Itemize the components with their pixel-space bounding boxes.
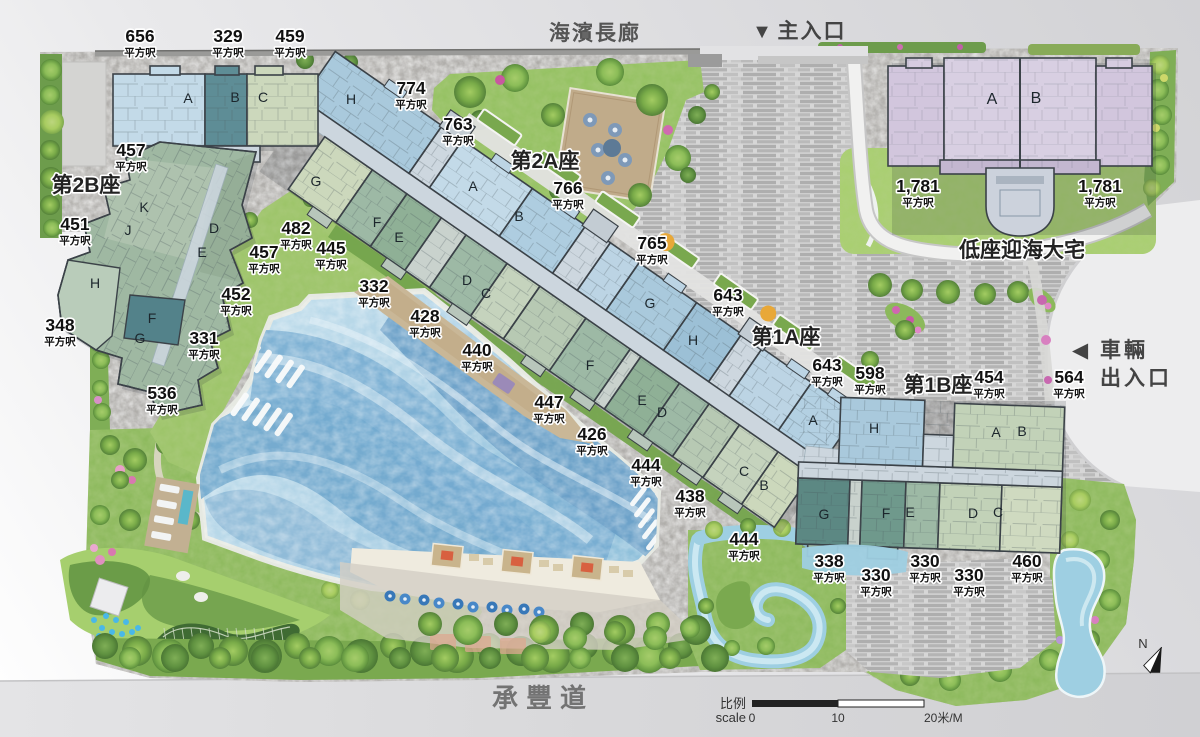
svg-text:平方呎: 平方呎	[124, 46, 156, 59]
svg-text:E: E	[197, 244, 206, 260]
svg-text:F: F	[148, 310, 157, 326]
svg-text:B: B	[1031, 90, 1042, 107]
svg-text:G: G	[135, 330, 146, 346]
svg-text:B: B	[230, 89, 239, 105]
svg-text:平方呎: 平方呎	[315, 258, 347, 271]
svg-text:平方呎: 平方呎	[860, 585, 892, 598]
svg-text:451: 451	[60, 214, 89, 234]
svg-text:656: 656	[125, 26, 154, 46]
svg-text:平方呎: 平方呎	[712, 305, 744, 318]
svg-text:338: 338	[814, 551, 843, 571]
svg-text:H: H	[346, 91, 356, 107]
svg-text:平方呎: 平方呎	[854, 383, 886, 396]
svg-text:海濱長廊: 海濱長廊	[549, 21, 641, 45]
svg-text:20米/M: 20米/M	[924, 711, 963, 725]
svg-text:平方呎: 平方呎	[44, 335, 76, 348]
svg-text:330: 330	[910, 551, 939, 571]
svg-text:1,781: 1,781	[1078, 176, 1122, 196]
svg-text:D: D	[209, 220, 219, 236]
svg-text:F: F	[373, 214, 382, 230]
svg-text:低座迎海大宅: 低座迎海大宅	[958, 238, 1085, 262]
svg-text:0: 0	[749, 711, 756, 725]
svg-text:出入口: 出入口	[1100, 367, 1172, 390]
svg-text:◀: ◀	[1072, 339, 1089, 362]
svg-text:A: A	[987, 91, 998, 108]
svg-text:440: 440	[462, 340, 491, 360]
svg-text:平方呎: 平方呎	[358, 296, 390, 309]
svg-text:平方呎: 平方呎	[461, 360, 493, 373]
svg-text:457: 457	[249, 242, 278, 262]
svg-text:平方呎: 平方呎	[728, 549, 760, 562]
svg-text:平方呎: 平方呎	[409, 326, 441, 339]
svg-text:比例: 比例	[720, 696, 746, 711]
svg-text:平方呎: 平方呎	[552, 198, 584, 211]
svg-text:C: C	[739, 463, 749, 479]
svg-text:348: 348	[45, 315, 74, 335]
svg-text:平方呎: 平方呎	[813, 571, 845, 584]
svg-text:H: H	[869, 420, 879, 436]
svg-text:444: 444	[631, 455, 660, 475]
svg-text:A: A	[183, 90, 193, 106]
svg-text:平方呎: 平方呎	[146, 403, 178, 416]
svg-text:平方呎: 平方呎	[953, 585, 985, 598]
svg-text:643: 643	[713, 285, 742, 305]
svg-text:330: 330	[954, 565, 983, 585]
svg-text:A: A	[991, 424, 1001, 440]
svg-text:第1B座: 第1B座	[904, 373, 973, 397]
svg-text:A: A	[468, 178, 478, 194]
svg-text:G: G	[819, 506, 830, 522]
svg-text:B: B	[514, 208, 523, 224]
svg-text:454: 454	[974, 367, 1003, 387]
svg-text:B: B	[1017, 423, 1026, 439]
svg-text:平方呎: 平方呎	[1084, 196, 1116, 209]
svg-text:452: 452	[221, 284, 250, 304]
svg-text:第2A座: 第2A座	[511, 149, 580, 173]
svg-text:平方呎: 平方呎	[115, 160, 147, 173]
svg-text:▼: ▼	[752, 21, 772, 43]
svg-text:774: 774	[396, 78, 425, 98]
svg-text:536: 536	[147, 383, 176, 403]
svg-text:F: F	[586, 357, 595, 373]
svg-text:平方呎: 平方呎	[811, 375, 843, 388]
svg-text:A: A	[808, 412, 818, 428]
svg-text:N: N	[1138, 636, 1147, 651]
svg-text:平方呎: 平方呎	[674, 506, 706, 519]
svg-text:第2B座: 第2B座	[52, 173, 121, 197]
svg-text:D: D	[657, 404, 667, 420]
svg-text:平方呎: 平方呎	[280, 238, 312, 251]
svg-text:平方呎: 平方呎	[630, 475, 662, 488]
svg-text:平方呎: 平方呎	[248, 262, 280, 275]
svg-text:332: 332	[359, 276, 388, 296]
svg-text:D: D	[462, 272, 472, 288]
svg-text:445: 445	[316, 238, 345, 258]
svg-text:329: 329	[213, 26, 242, 46]
svg-text:444: 444	[729, 529, 758, 549]
svg-text:平方呎: 平方呎	[533, 412, 565, 425]
svg-text:482: 482	[281, 218, 310, 238]
svg-text:F: F	[882, 505, 891, 521]
svg-text:主入口: 主入口	[778, 20, 847, 43]
svg-text:H: H	[90, 275, 100, 291]
svg-text:426: 426	[577, 424, 606, 444]
svg-text:J: J	[125, 222, 132, 238]
svg-text:330: 330	[861, 565, 890, 585]
svg-text:E: E	[637, 392, 646, 408]
svg-text:承豐道: 承豐道	[492, 683, 594, 713]
svg-text:766: 766	[553, 178, 582, 198]
svg-text:438: 438	[675, 486, 704, 506]
svg-text:K: K	[139, 199, 149, 215]
svg-text:平方呎: 平方呎	[1011, 571, 1043, 584]
svg-text:平方呎: 平方呎	[212, 46, 244, 59]
svg-text:平方呎: 平方呎	[188, 348, 220, 361]
svg-text:平方呎: 平方呎	[973, 387, 1005, 400]
svg-text:B: B	[759, 477, 768, 493]
svg-text:643: 643	[812, 355, 841, 375]
svg-text:車輛: 車輛	[1100, 338, 1148, 362]
svg-text:E: E	[905, 504, 914, 520]
svg-text:C: C	[258, 89, 268, 105]
svg-text:G: G	[645, 295, 656, 311]
svg-text:1,781: 1,781	[896, 176, 940, 196]
svg-text:scale: scale	[716, 710, 746, 725]
svg-text:447: 447	[534, 392, 563, 412]
svg-text:平方呎: 平方呎	[442, 134, 474, 147]
svg-text:第1A座: 第1A座	[752, 325, 821, 349]
svg-text:459: 459	[275, 26, 304, 46]
svg-text:428: 428	[410, 306, 439, 326]
svg-text:平方呎: 平方呎	[1053, 387, 1085, 400]
svg-text:平方呎: 平方呎	[636, 253, 668, 266]
svg-text:765: 765	[637, 233, 666, 253]
svg-text:763: 763	[443, 114, 472, 134]
svg-text:平方呎: 平方呎	[902, 196, 934, 209]
svg-text:D: D	[968, 505, 978, 521]
svg-text:平方呎: 平方呎	[274, 46, 306, 59]
svg-text:564: 564	[1054, 367, 1083, 387]
svg-text:457: 457	[116, 140, 145, 160]
svg-text:平方呎: 平方呎	[576, 444, 608, 457]
svg-text:460: 460	[1012, 551, 1041, 571]
svg-text:10: 10	[831, 711, 845, 725]
svg-text:平方呎: 平方呎	[220, 304, 252, 317]
svg-text:G: G	[311, 173, 322, 189]
svg-text:331: 331	[189, 328, 218, 348]
svg-text:C: C	[993, 504, 1003, 520]
svg-text:C: C	[481, 285, 491, 301]
svg-text:E: E	[394, 229, 403, 245]
svg-text:平方呎: 平方呎	[909, 571, 941, 584]
svg-text:平方呎: 平方呎	[59, 234, 91, 247]
svg-text:598: 598	[855, 363, 884, 383]
svg-text:H: H	[688, 332, 698, 348]
svg-text:平方呎: 平方呎	[395, 98, 427, 111]
